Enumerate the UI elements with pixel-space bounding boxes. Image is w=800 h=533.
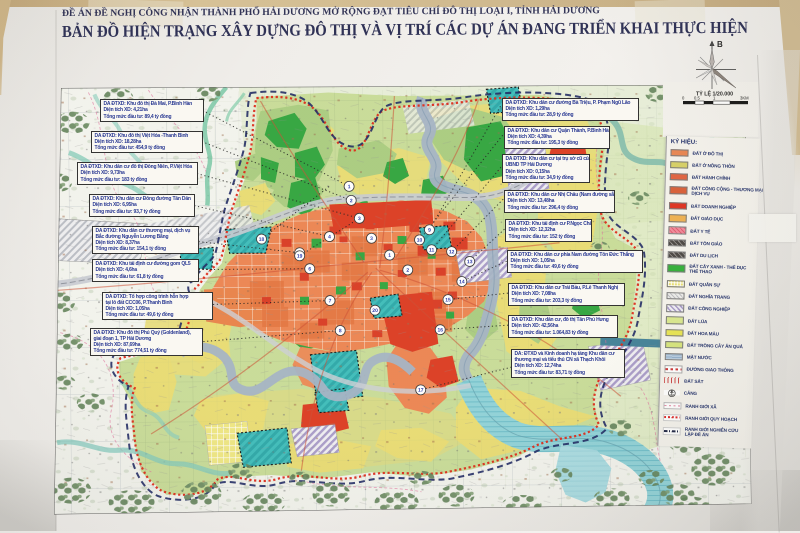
- svg-text:10: 10: [417, 238, 423, 244]
- svg-text:3: 3: [370, 236, 373, 242]
- svg-text:3: 3: [358, 216, 361, 222]
- svg-text:0.5: 0.5: [694, 96, 700, 101]
- svg-text:11: 11: [429, 248, 435, 254]
- svg-text:2: 2: [350, 198, 353, 204]
- svg-text:8: 8: [339, 328, 342, 334]
- svg-text:14: 14: [459, 279, 465, 285]
- svg-text:9: 9: [428, 228, 431, 234]
- svg-text:15: 15: [445, 297, 451, 303]
- svg-text:13: 13: [467, 259, 473, 265]
- svg-text:17: 17: [418, 388, 424, 394]
- svg-text:19: 19: [297, 254, 303, 260]
- svg-text:1: 1: [388, 253, 391, 259]
- svg-text:4: 4: [328, 234, 331, 240]
- svg-text:20: 20: [372, 308, 378, 314]
- svg-text:7: 7: [329, 298, 332, 304]
- svg-text:6: 6: [308, 266, 311, 272]
- svg-text:12: 12: [449, 249, 455, 255]
- svg-text:B: B: [717, 40, 723, 49]
- svg-text:0: 0: [682, 96, 685, 101]
- svg-text:1: 1: [348, 184, 351, 190]
- svg-text:3KM: 3KM: [740, 96, 749, 101]
- svg-text:16: 16: [437, 327, 443, 333]
- svg-text:2: 2: [406, 268, 409, 274]
- svg-text:18: 18: [259, 237, 265, 243]
